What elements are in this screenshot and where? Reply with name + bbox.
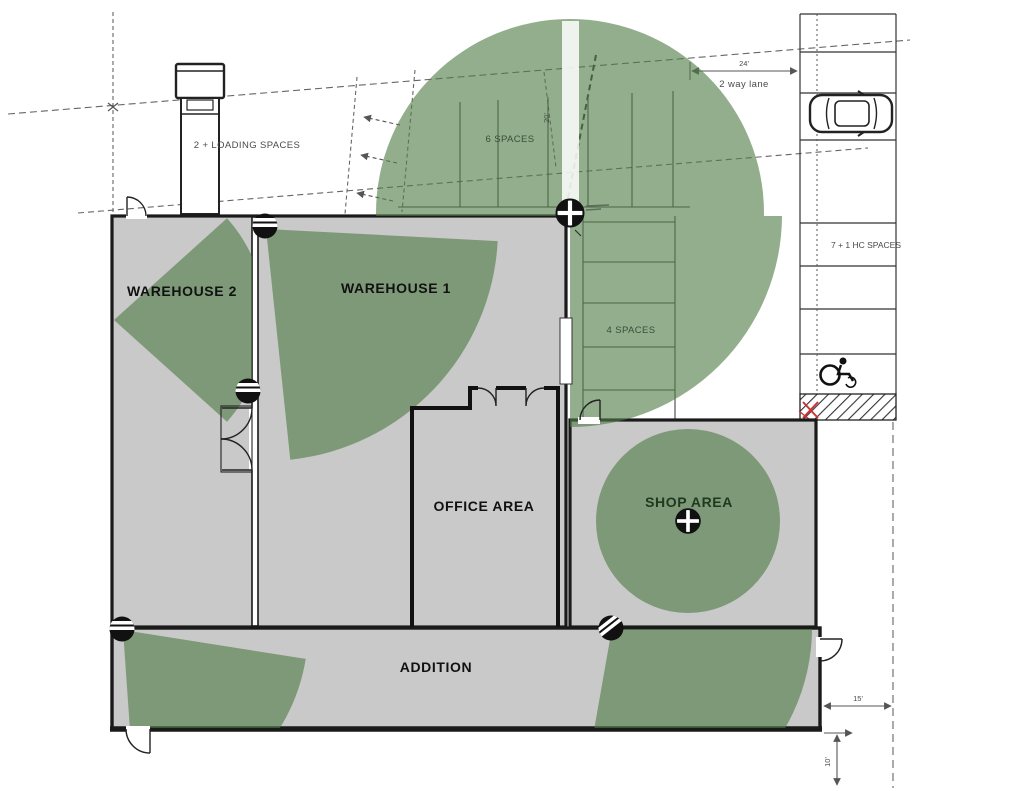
coverage-wedge-addition-east: [577, 628, 812, 791]
addition-south-door: [126, 726, 150, 753]
warehouse2-label: WAREHOUSE 2: [127, 283, 237, 299]
south-setback-dimension: 10': [823, 733, 852, 785]
overhead-door-east: [560, 318, 572, 384]
parking-strip-east: [800, 14, 896, 394]
lane-label: 2 way lane: [719, 79, 768, 90]
stall-depth-dim: 20': [542, 113, 551, 123]
addition-label: ADDITION: [400, 659, 472, 675]
ptz-camera-icon: [675, 508, 701, 534]
south-setback-dim-text: 10': [823, 757, 832, 767]
stall-boundary-dashed-1: [345, 77, 357, 214]
truck-icon: [176, 64, 224, 214]
hc-spaces-label: 7 + 1 HC SPACES: [831, 240, 901, 250]
four-spaces-label: 4 SPACES: [607, 325, 656, 336]
lane-width-dim: 24': [739, 59, 749, 68]
entry-door-northwest: [126, 197, 147, 219]
east-setback-dimension: 15': [824, 694, 891, 706]
site-plan-page: 24' 2 way lane: [0, 0, 1024, 791]
warehouse1-label: WAREHOUSE 1: [341, 280, 451, 296]
shop-label: SHOP AREA: [645, 494, 733, 510]
loading-spaces-label: 2 + LOADING SPACES: [194, 140, 301, 151]
office-label: OFFICE AREA: [434, 498, 535, 514]
site-plan-drawing: 24' 2 way lane: [0, 0, 1024, 791]
car-icon: [810, 91, 892, 136]
east-setback-dim-text: 15': [853, 694, 863, 703]
wheelchair-icon: [821, 358, 856, 387]
ptz-camera-icon: [555, 198, 584, 227]
coverage-quarter-east: [570, 215, 782, 427]
coverage-gap-stripe: [562, 21, 579, 215]
six-spaces-label: 6 SPACES: [486, 134, 535, 145]
